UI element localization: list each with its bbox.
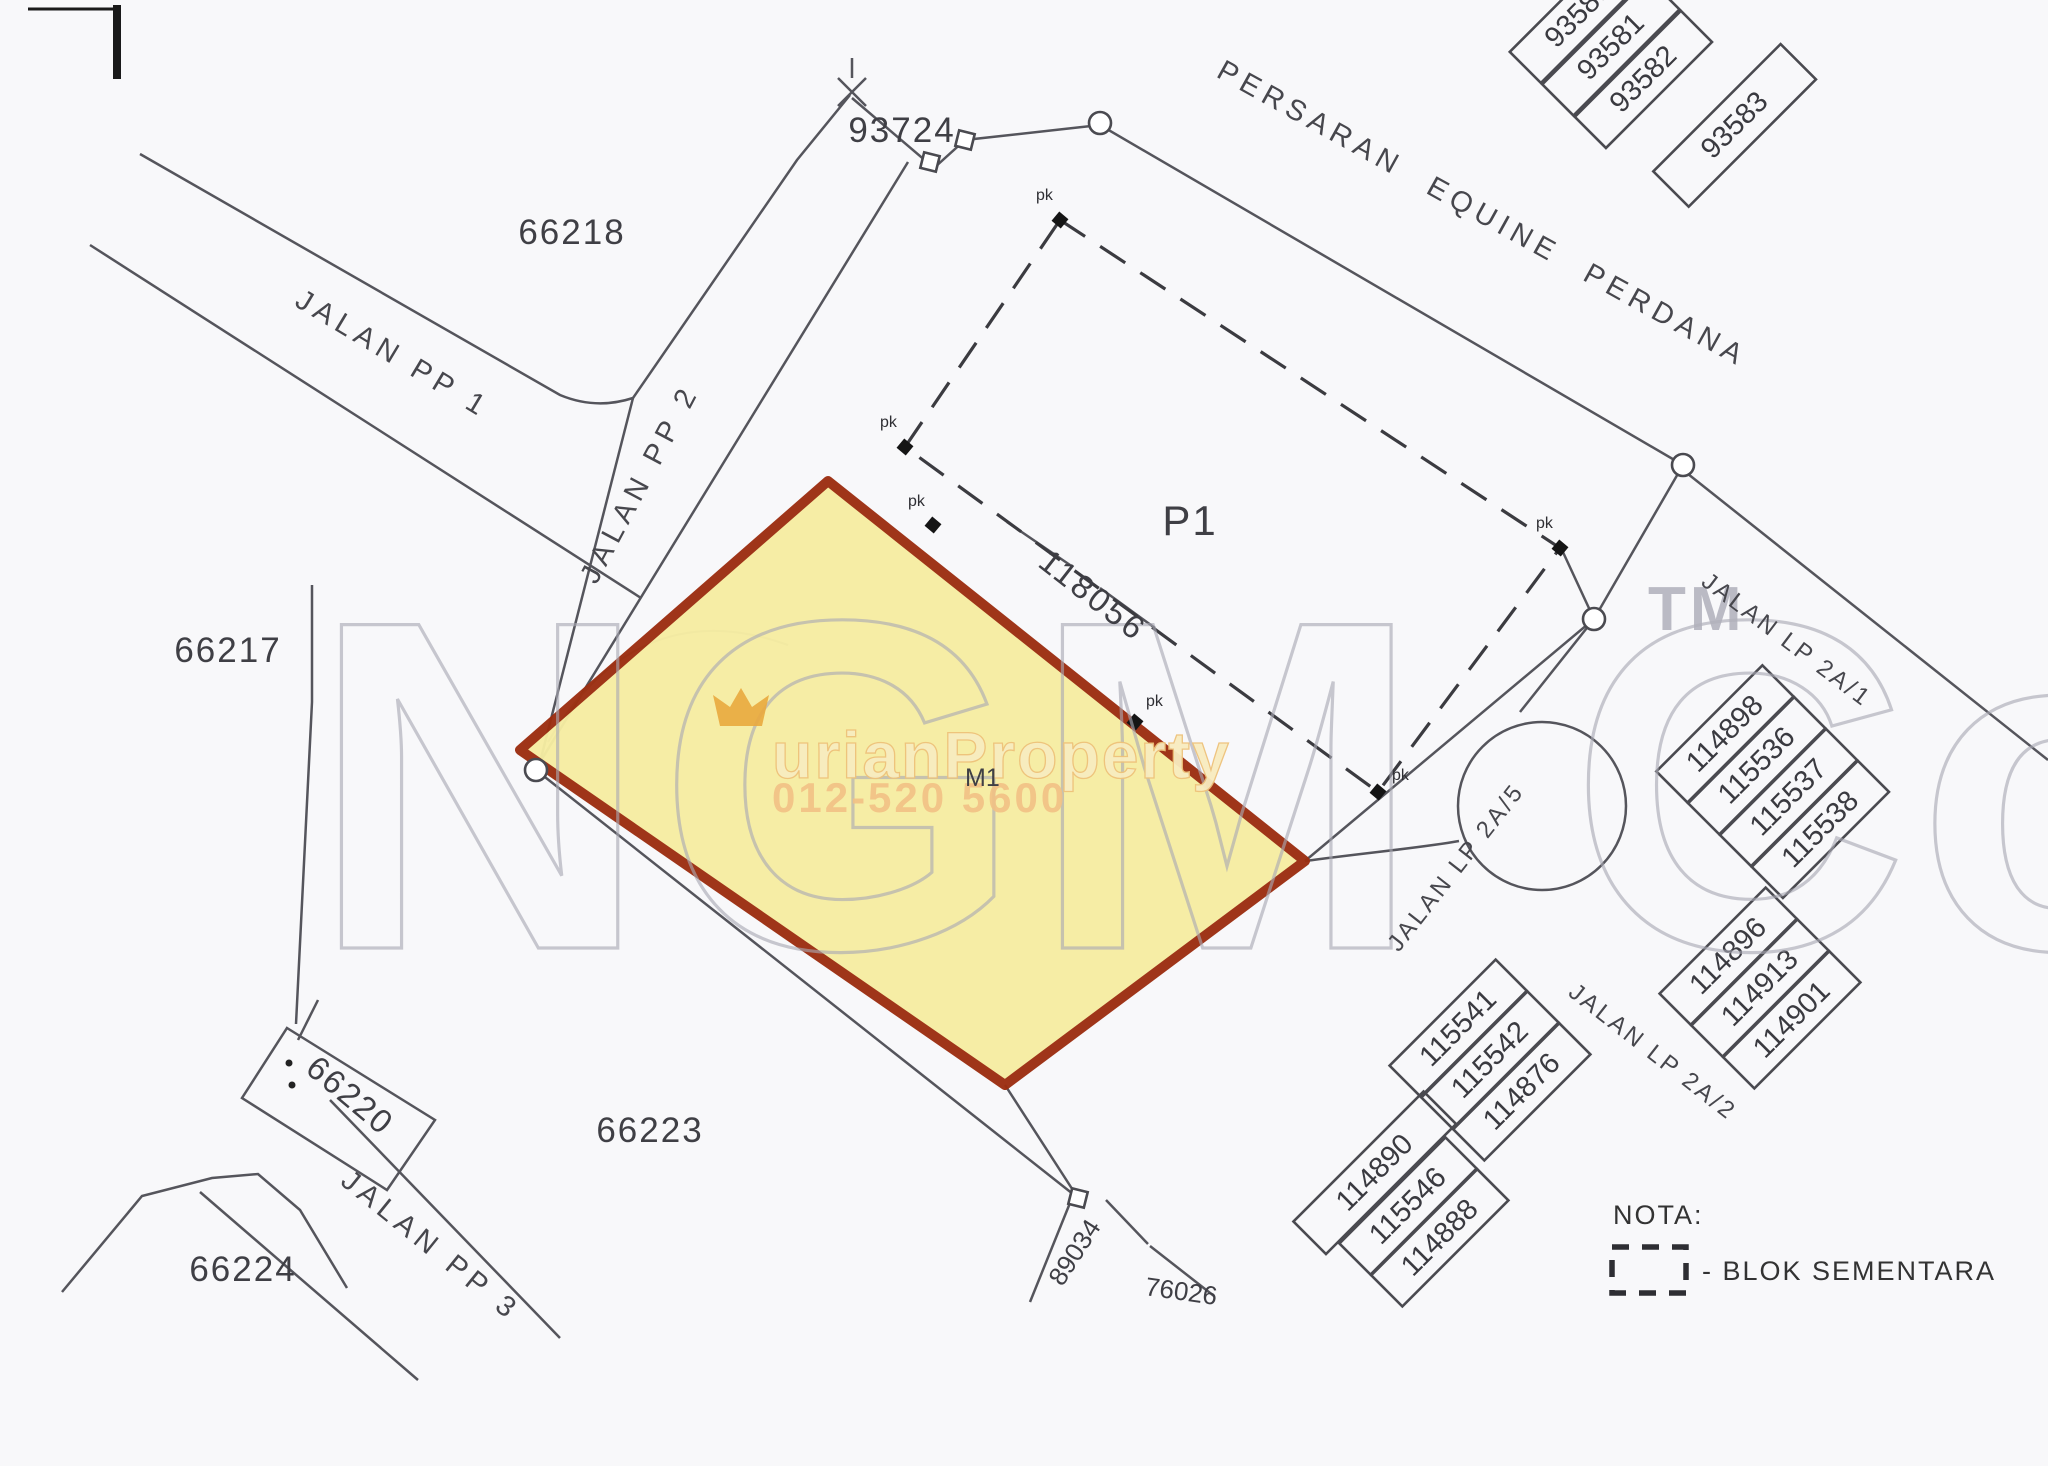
lot-66224-label: 66224 bbox=[189, 1250, 296, 1289]
lot-66218-boundary bbox=[140, 95, 850, 403]
legend-item-label: - BLOK SEMENTARA bbox=[1702, 1256, 1996, 1286]
jalan-pp3-label: JALAN PP 3 bbox=[335, 1164, 527, 1328]
legend-title: NOTA: bbox=[1613, 1200, 1704, 1230]
persaran-equine-perdana-label: PERSARAN EQUINE PERDANA bbox=[1212, 54, 1753, 373]
scan-corner-mark bbox=[28, 5, 121, 79]
property-phone-watermark: 012-520 5600 bbox=[772, 774, 1067, 821]
lot-66220-label: 66220 bbox=[300, 1048, 402, 1142]
p1-block-label: P1 bbox=[1162, 497, 1217, 544]
bottom-number-76026: 76026 bbox=[1143, 1271, 1219, 1311]
parcel-m1-label: M1 bbox=[965, 764, 1000, 792]
lot-cluster-93580s: 93580 93581 93582 93583 bbox=[1510, 0, 1816, 219]
bottom-number-89034: 89034 bbox=[1042, 1214, 1107, 1291]
lot-93724-label: 93724 bbox=[848, 111, 955, 150]
cadastral-map-page: pk pk pk pk pk pk 93580 93581 93582 9358… bbox=[0, 0, 2048, 1466]
persaran-road-line bbox=[852, 98, 1683, 465]
jalan-pp1-label: JALAN PP 1 bbox=[290, 284, 496, 425]
lot-66223-label: 66223 bbox=[596, 1111, 703, 1150]
boundary-dot bbox=[286, 1060, 293, 1067]
legend-dashed-box bbox=[1612, 1247, 1686, 1293]
lot-number: 93583 bbox=[1695, 86, 1775, 166]
pk-label: pk bbox=[880, 414, 898, 431]
lot-cluster-114890s: 114890 115546 114888 bbox=[1293, 1091, 1520, 1318]
boundary-dot bbox=[289, 1082, 296, 1089]
pk-label: pk bbox=[908, 493, 926, 510]
parcel-to-junction bbox=[1005, 1085, 1078, 1198]
pk-label: pk bbox=[1036, 187, 1054, 204]
lot-66217-label: 66217 bbox=[174, 631, 281, 670]
lot-66218-label: 66218 bbox=[518, 213, 625, 252]
bottom-road-right bbox=[1106, 1200, 1148, 1244]
site-plan-svg: pk pk pk pk pk pk 93580 93581 93582 9358… bbox=[0, 0, 2048, 1466]
legend: NOTA: - BLOK SEMENTARA bbox=[1612, 1200, 1996, 1293]
